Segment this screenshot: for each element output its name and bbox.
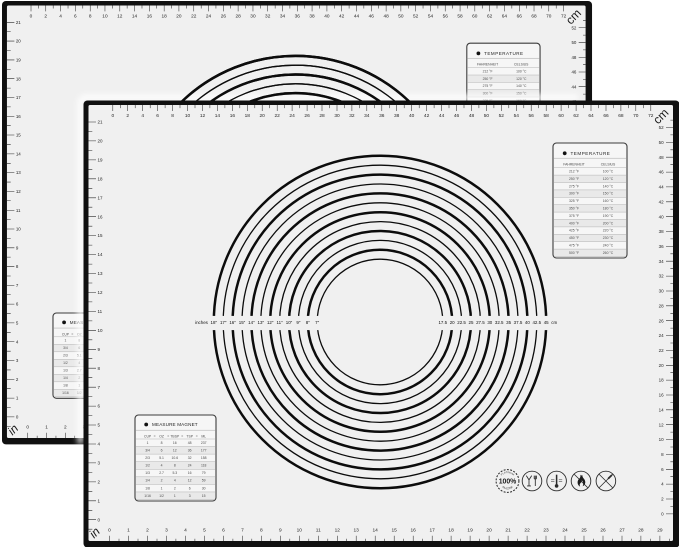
svg-text:CUP: CUP [144, 435, 152, 439]
svg-text:250 °F: 250 °F [569, 177, 579, 181]
svg-text:1/16: 1/16 [144, 494, 151, 498]
svg-text:24: 24 [659, 333, 665, 338]
svg-text:160 °C: 160 °C [603, 199, 614, 203]
svg-text:9″: 9″ [296, 320, 300, 325]
svg-text:2/3: 2/3 [63, 354, 68, 358]
svg-text:45: 45 [544, 320, 549, 325]
svg-text:60: 60 [472, 13, 478, 19]
svg-text:2: 2 [126, 113, 129, 119]
svg-text:52: 52 [571, 25, 576, 30]
svg-text:TEMPERATURE: TEMPERATURE [484, 51, 523, 56]
svg-text:6: 6 [74, 13, 77, 19]
svg-text:52: 52 [659, 125, 665, 130]
svg-text:=: = [196, 435, 198, 439]
svg-text:20: 20 [659, 363, 665, 368]
svg-text:1/8: 1/8 [63, 384, 68, 388]
svg-text:9: 9 [279, 527, 282, 533]
svg-text:1: 1 [65, 339, 67, 343]
svg-text:100 °C: 100 °C [603, 170, 614, 174]
svg-text:54: 54 [428, 13, 434, 19]
svg-text:16″: 16″ [229, 320, 236, 325]
svg-text:21: 21 [505, 527, 511, 533]
svg-text:58: 58 [457, 13, 463, 19]
svg-text:17.5: 17.5 [438, 320, 447, 325]
svg-text:140 °C: 140 °C [603, 184, 614, 188]
svg-text:23: 23 [543, 527, 549, 533]
svg-text:475 °F: 475 °F [569, 244, 579, 248]
svg-text:10: 10 [16, 227, 21, 232]
svg-text:16: 16 [230, 113, 236, 119]
svg-text:10.6: 10.6 [171, 456, 178, 460]
svg-text:118: 118 [201, 464, 207, 468]
svg-text:12: 12 [188, 479, 192, 483]
svg-text:260 °C: 260 °C [603, 251, 614, 255]
svg-text:400 °F: 400 °F [569, 221, 579, 225]
svg-text:237: 237 [201, 441, 207, 445]
svg-text:240 °C: 240 °C [603, 244, 614, 248]
svg-text:48: 48 [469, 113, 475, 119]
svg-text:19: 19 [16, 58, 21, 63]
svg-text:12: 12 [659, 422, 665, 427]
svg-text:150 °C: 150 °C [603, 192, 614, 196]
svg-text:TSP: TSP [186, 435, 193, 439]
svg-text:0: 0 [26, 424, 29, 430]
svg-text:29: 29 [657, 527, 663, 533]
svg-text:79: 79 [202, 471, 206, 475]
svg-text:ML: ML [201, 435, 206, 439]
svg-text:26: 26 [221, 13, 227, 19]
svg-text:66: 66 [603, 113, 609, 119]
svg-text:17: 17 [98, 195, 104, 200]
svg-text:34: 34 [364, 113, 370, 119]
svg-text:1: 1 [45, 424, 48, 430]
svg-text:10: 10 [659, 437, 665, 442]
svg-text:48: 48 [571, 55, 576, 60]
svg-text:32.5: 32.5 [495, 320, 504, 325]
svg-text:19: 19 [98, 158, 104, 163]
svg-text:=: = [71, 332, 73, 336]
svg-text:40: 40 [409, 113, 415, 119]
svg-text:21: 21 [98, 120, 104, 125]
svg-text:35: 35 [506, 320, 511, 325]
svg-text:8: 8 [161, 441, 163, 445]
svg-text:27: 27 [619, 527, 625, 533]
svg-text:CUP: CUP [62, 332, 70, 336]
svg-text:14: 14 [132, 13, 138, 19]
svg-text:0: 0 [111, 113, 114, 119]
svg-text:14: 14 [659, 407, 665, 412]
svg-text:TBSP: TBSP [170, 435, 180, 439]
svg-text:20: 20 [486, 527, 492, 533]
svg-text:46: 46 [369, 13, 375, 19]
svg-text:24: 24 [206, 13, 212, 19]
svg-text:inches: inches [195, 320, 209, 325]
svg-text:120 °C: 120 °C [603, 177, 614, 181]
svg-text:16: 16 [173, 441, 177, 445]
svg-text:3: 3 [189, 494, 191, 498]
svg-text:32: 32 [659, 274, 665, 279]
svg-text:5.3: 5.3 [172, 471, 177, 475]
svg-text:22: 22 [524, 527, 530, 533]
svg-text:16: 16 [98, 214, 104, 219]
svg-text:38: 38 [394, 113, 400, 119]
svg-text:26: 26 [600, 527, 606, 533]
svg-text:10″: 10″ [286, 320, 293, 325]
svg-text:18: 18 [98, 176, 104, 181]
svg-text:10: 10 [102, 13, 108, 19]
svg-text:44: 44 [354, 13, 360, 19]
svg-text:350 °F: 350 °F [569, 207, 579, 211]
svg-text:10: 10 [185, 113, 191, 119]
svg-text:6: 6 [156, 113, 159, 119]
svg-text:22: 22 [659, 348, 665, 353]
svg-text:12: 12 [117, 13, 123, 19]
svg-text:450 °F: 450 °F [569, 236, 579, 240]
svg-text:2: 2 [146, 527, 149, 533]
svg-text:4: 4 [141, 113, 144, 119]
svg-text:70: 70 [633, 113, 639, 119]
svg-text:42: 42 [339, 13, 345, 19]
svg-text:425 °F: 425 °F [569, 229, 579, 233]
svg-text:26: 26 [659, 318, 665, 323]
svg-text:44: 44 [439, 113, 445, 119]
svg-text:58: 58 [544, 113, 550, 119]
svg-text:36: 36 [295, 13, 301, 19]
svg-text:17″: 17″ [220, 320, 227, 325]
svg-text:16: 16 [188, 471, 192, 475]
svg-text:17: 17 [16, 95, 21, 100]
svg-text:275 °F: 275 °F [483, 84, 493, 88]
svg-text:16: 16 [659, 393, 665, 398]
svg-text:22: 22 [275, 113, 281, 119]
svg-text:275 °F: 275 °F [569, 184, 579, 188]
svg-text:32: 32 [188, 456, 192, 460]
svg-text:1/4: 1/4 [63, 376, 68, 380]
svg-text:15: 15 [16, 133, 21, 138]
svg-text:8″: 8″ [306, 320, 310, 325]
svg-text:50: 50 [571, 40, 576, 45]
svg-text:325 °F: 325 °F [569, 199, 579, 203]
svg-text:375 °F: 375 °F [569, 214, 579, 218]
svg-text:3: 3 [165, 527, 168, 533]
svg-text:32: 32 [349, 113, 355, 119]
svg-text:20: 20 [450, 320, 455, 325]
svg-text:2: 2 [174, 486, 176, 490]
svg-text:200 °C: 200 °C [603, 221, 614, 225]
svg-text:2.7: 2.7 [159, 471, 164, 475]
svg-text:42: 42 [659, 199, 665, 204]
svg-text:50: 50 [398, 13, 404, 19]
svg-text:230 °C: 230 °C [603, 236, 614, 240]
svg-text:50: 50 [659, 140, 665, 145]
svg-text:28: 28 [235, 13, 241, 19]
svg-text:300 °F: 300 °F [569, 192, 579, 196]
svg-text:11″: 11″ [277, 320, 284, 325]
svg-text:15: 15 [392, 527, 398, 533]
svg-text:1/2: 1/2 [63, 361, 68, 365]
svg-text:17: 17 [430, 527, 436, 533]
svg-text:21: 21 [16, 20, 21, 25]
svg-text:7″: 7″ [315, 320, 319, 325]
svg-text:60: 60 [558, 113, 564, 119]
svg-text:13″: 13″ [258, 320, 265, 325]
svg-text:14: 14 [98, 252, 104, 257]
svg-text:68: 68 [531, 13, 537, 19]
svg-text:30: 30 [202, 486, 206, 490]
svg-text:24: 24 [188, 464, 192, 468]
svg-text:18: 18 [448, 527, 454, 533]
svg-text:12″: 12″ [267, 320, 274, 325]
svg-text:37.5: 37.5 [514, 320, 523, 325]
svg-text:177: 177 [201, 448, 207, 452]
svg-text:24: 24 [562, 527, 568, 533]
svg-text:12: 12 [16, 189, 21, 194]
svg-text:22: 22 [191, 13, 197, 19]
svg-text:1/3: 1/3 [63, 369, 68, 373]
svg-text:4: 4 [184, 527, 187, 533]
svg-text:cm: cm [551, 320, 557, 325]
svg-text:12: 12 [173, 448, 177, 452]
svg-text:28: 28 [638, 527, 644, 533]
svg-text:CELSIUS: CELSIUS [514, 62, 529, 66]
svg-text:40: 40 [324, 13, 330, 19]
svg-text:3/4: 3/4 [63, 346, 68, 350]
svg-text:54: 54 [514, 113, 520, 119]
svg-text:56: 56 [443, 13, 449, 19]
svg-text:64: 64 [502, 13, 508, 19]
svg-text:22.5: 22.5 [457, 320, 466, 325]
svg-text:12: 12 [335, 527, 341, 533]
svg-text:1/16: 1/16 [62, 391, 69, 395]
svg-text:52: 52 [413, 13, 419, 19]
svg-text:1: 1 [127, 527, 130, 533]
svg-text:14: 14 [215, 113, 221, 119]
svg-text:500 °F: 500 °F [569, 251, 579, 255]
svg-text:140 °C: 140 °C [516, 84, 527, 88]
svg-text:8: 8 [171, 113, 174, 119]
svg-text:28: 28 [319, 113, 325, 119]
svg-text:12: 12 [200, 113, 206, 119]
svg-text:100 °C: 100 °C [516, 69, 527, 73]
svg-text:10: 10 [297, 527, 303, 533]
svg-text:1/2: 1/2 [145, 464, 150, 468]
svg-text:44: 44 [571, 84, 576, 89]
svg-text:6: 6 [189, 486, 191, 490]
svg-text:250 °F: 250 °F [483, 77, 493, 81]
svg-text:158: 158 [201, 456, 207, 460]
svg-text:12: 12 [98, 290, 104, 295]
svg-text:18: 18 [659, 378, 665, 383]
svg-text:1: 1 [174, 494, 176, 498]
svg-text:11: 11 [98, 309, 103, 314]
svg-text:25: 25 [581, 527, 587, 533]
svg-text:212 °F: 212 °F [569, 170, 579, 174]
svg-text:14: 14 [16, 151, 21, 156]
svg-text:220 °C: 220 °C [603, 229, 614, 233]
svg-text:40: 40 [659, 214, 665, 219]
svg-text:18: 18 [245, 113, 251, 119]
svg-text:48: 48 [188, 441, 192, 445]
svg-text:1: 1 [147, 441, 149, 445]
svg-text:66: 66 [517, 13, 523, 19]
svg-text:13: 13 [16, 170, 21, 175]
svg-text:36: 36 [188, 448, 192, 452]
svg-text:24: 24 [289, 113, 295, 119]
svg-text:1/2: 1/2 [159, 494, 164, 498]
svg-text:30: 30 [487, 320, 492, 325]
svg-text:8: 8 [260, 527, 263, 533]
svg-text:42.5: 42.5 [532, 320, 541, 325]
svg-text:50: 50 [484, 113, 490, 119]
svg-text:34: 34 [280, 13, 286, 19]
svg-text:32: 32 [265, 13, 271, 19]
svg-text:15: 15 [202, 494, 206, 498]
svg-text:25: 25 [469, 320, 474, 325]
svg-text:16: 16 [16, 114, 21, 119]
svg-text:28: 28 [659, 303, 665, 308]
svg-text:5.1: 5.1 [159, 456, 164, 460]
svg-text:7: 7 [241, 527, 244, 533]
svg-text:=: = [154, 435, 156, 439]
svg-text:100%: 100% [499, 478, 517, 485]
svg-text:15: 15 [98, 233, 104, 238]
svg-text:30: 30 [334, 113, 340, 119]
svg-text:48: 48 [659, 155, 665, 160]
svg-text:11: 11 [16, 208, 21, 213]
svg-text:62: 62 [487, 13, 493, 19]
svg-text:120 °C: 120 °C [516, 77, 527, 81]
svg-text:64: 64 [588, 113, 594, 119]
svg-text:FAHRENHEIT: FAHRENHEIT [563, 162, 584, 166]
svg-text:34: 34 [659, 259, 665, 264]
svg-text:212 °F: 212 °F [483, 69, 493, 73]
svg-text:20: 20 [16, 39, 21, 44]
svg-text:TEMPERATURE: TEMPERATURE [571, 151, 611, 156]
svg-text:5: 5 [203, 527, 206, 533]
svg-text:62: 62 [573, 113, 579, 119]
svg-text:52: 52 [499, 113, 505, 119]
svg-text:1/3: 1/3 [145, 471, 150, 475]
svg-text:1/8: 1/8 [145, 486, 150, 490]
svg-text:18: 18 [16, 76, 21, 81]
svg-text:59: 59 [202, 479, 206, 483]
svg-text:48: 48 [383, 13, 389, 19]
svg-text:0: 0 [30, 13, 33, 19]
svg-text:36: 36 [659, 244, 665, 249]
svg-text:11: 11 [316, 527, 321, 533]
svg-text:14″: 14″ [248, 320, 255, 325]
svg-text:14: 14 [373, 527, 379, 533]
svg-text:1: 1 [161, 486, 163, 490]
svg-text:38: 38 [309, 13, 315, 19]
svg-text:2/3: 2/3 [145, 456, 150, 460]
svg-text:0: 0 [108, 527, 111, 533]
svg-text:42: 42 [424, 113, 430, 119]
svg-text:4: 4 [174, 479, 176, 483]
svg-text:10: 10 [98, 328, 104, 333]
svg-text:MEASURE MAGNET: MEASURE MAGNET [152, 422, 198, 427]
svg-text:2: 2 [44, 13, 47, 19]
svg-text:36: 36 [379, 113, 385, 119]
svg-text:1/4: 1/4 [145, 479, 150, 483]
svg-text:56: 56 [529, 113, 535, 119]
svg-text:2: 2 [161, 479, 163, 483]
svg-text:4: 4 [161, 464, 163, 468]
svg-text:20: 20 [176, 13, 182, 19]
svg-text:16: 16 [147, 13, 153, 19]
svg-text:CELSIUS: CELSIUS [601, 162, 616, 166]
svg-text:13: 13 [354, 527, 360, 533]
svg-text:18: 18 [162, 13, 168, 19]
svg-text:180 °C: 180 °C [603, 207, 614, 211]
svg-text:FAHRENHEIT: FAHRENHEIT [477, 62, 498, 66]
svg-text:8: 8 [174, 464, 176, 468]
svg-text:30: 30 [659, 289, 665, 294]
svg-text:=: = [181, 435, 183, 439]
svg-text:=: = [167, 435, 169, 439]
svg-text:38: 38 [659, 229, 665, 234]
svg-text:3/4: 3/4 [145, 448, 150, 452]
svg-text:40: 40 [525, 320, 530, 325]
svg-text:2: 2 [64, 424, 67, 430]
svg-text:20: 20 [260, 113, 266, 119]
svg-text:46: 46 [659, 170, 665, 175]
svg-text:68: 68 [618, 113, 624, 119]
svg-text:46: 46 [454, 113, 460, 119]
svg-text:27.5: 27.5 [476, 320, 485, 325]
svg-text:16: 16 [411, 527, 417, 533]
svg-text:19: 19 [467, 527, 473, 533]
svg-text:26: 26 [304, 113, 310, 119]
svg-text:13: 13 [98, 271, 104, 276]
svg-text:44: 44 [659, 185, 665, 190]
svg-text:OZ: OZ [159, 435, 164, 439]
svg-text:30: 30 [250, 13, 256, 19]
svg-text:18″: 18″ [211, 320, 218, 325]
svg-text:6: 6 [161, 448, 163, 452]
svg-text:8: 8 [89, 13, 92, 19]
svg-text:4: 4 [59, 13, 62, 19]
svg-text:20: 20 [98, 139, 104, 144]
svg-text:46: 46 [571, 70, 576, 75]
svg-text:15″: 15″ [239, 320, 246, 325]
svg-text:6: 6 [222, 527, 225, 533]
svg-text:70: 70 [546, 13, 552, 19]
svg-text:190 °C: 190 °C [603, 214, 614, 218]
